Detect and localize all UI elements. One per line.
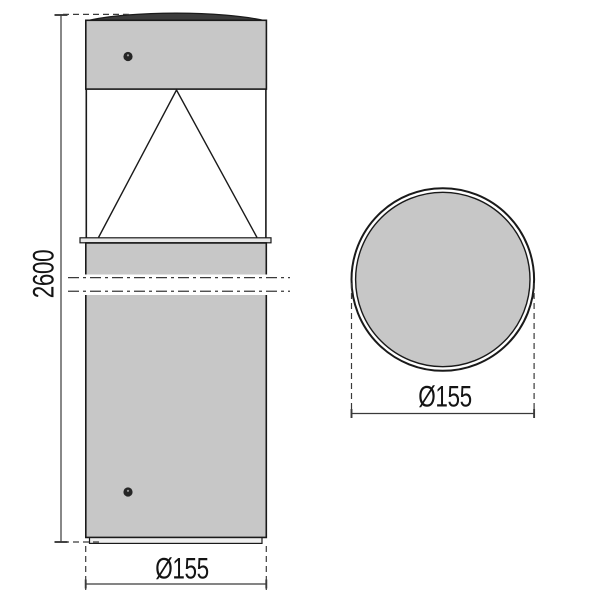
light-cone-triangle [99, 90, 258, 238]
cap-screw-highlight [127, 54, 129, 56]
post-screw-highlight [127, 490, 129, 492]
collar [86, 243, 266, 275]
front-diameter-label: Ø155 [155, 551, 209, 585]
luminaire-dimension-drawing: 2600 Ø155 Ø155 [0, 0, 600, 600]
rim-ring [80, 238, 271, 243]
cap-screw-icon [123, 52, 132, 61]
top-view [352, 188, 535, 371]
base-ring [90, 538, 263, 544]
post-screw-icon [123, 487, 132, 496]
top-view-inner-circle [356, 192, 530, 366]
post [86, 295, 266, 537]
diffuser [86, 89, 266, 238]
front-diameter-dimension: Ø155 [86, 546, 267, 590]
cap [86, 20, 267, 89]
top-diameter-label: Ø155 [418, 379, 472, 413]
height-dimension-label: 2600 [26, 250, 60, 299]
technical-drawing-page: 2600 Ø155 Ø155 [0, 0, 600, 600]
front-view [68, 13, 290, 543]
